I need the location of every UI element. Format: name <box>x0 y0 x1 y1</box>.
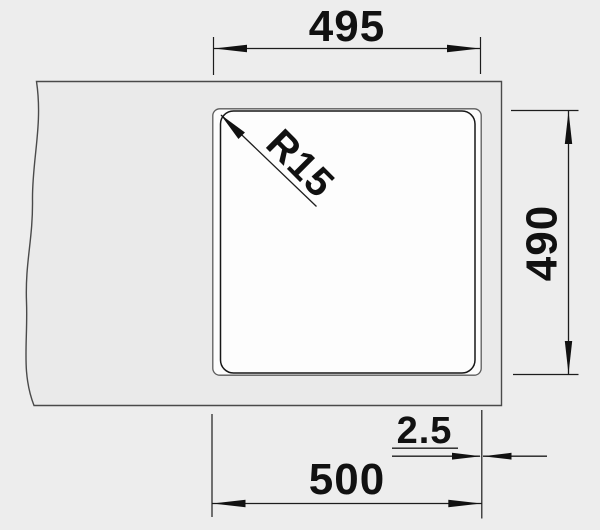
dim-cutout-width: 495 <box>214 2 481 75</box>
dim-490-arrow-top <box>565 111 572 144</box>
cutout-outer-rect <box>213 109 481 375</box>
dim-495-arrow-right <box>447 45 480 52</box>
dim-25-arrow-right <box>483 453 512 460</box>
drawing-canvas: 495 R15 490 2.5 <box>0 0 600 530</box>
dim-490-arrow-bottom <box>565 341 572 374</box>
dim-500-label: 500 <box>309 455 385 504</box>
dim-495-label: 495 <box>309 2 385 51</box>
installation-drawing: 495 R15 490 2.5 <box>0 0 600 530</box>
dim-depth: 490 <box>511 111 579 375</box>
dim-500-arrow-right <box>448 500 481 507</box>
sink-cutout <box>213 109 481 375</box>
dim-490-label: 490 <box>518 205 567 281</box>
dim-500-arrow-left <box>213 500 246 507</box>
dim-25-label: 2.5 <box>397 410 453 452</box>
dim-495-arrow-left <box>214 45 247 52</box>
dim-25-arrow-left <box>452 453 481 460</box>
